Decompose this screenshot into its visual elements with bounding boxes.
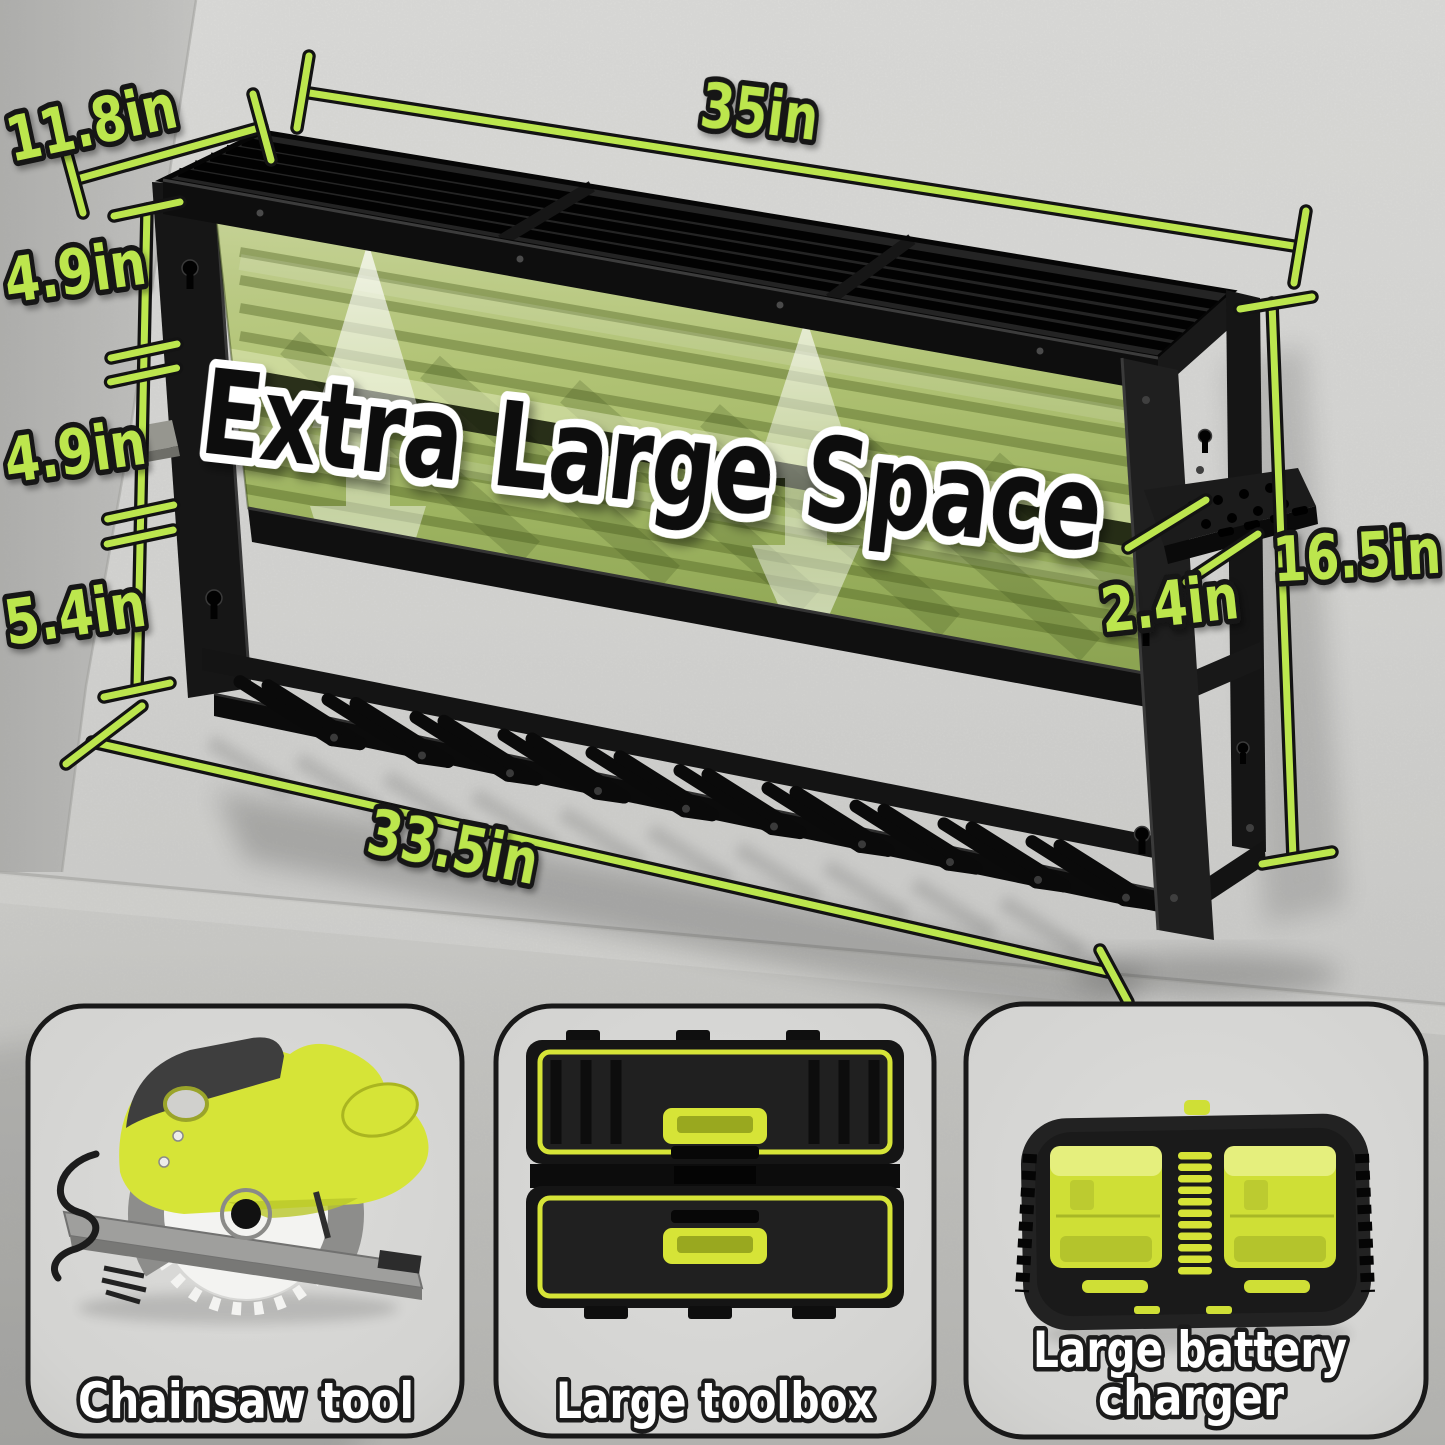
panel-label-charger-line2: charger [1098, 1369, 1284, 1427]
battery-pack [1050, 1146, 1162, 1268]
scene-svg: 11.8in 35in 4.9in 4.9in 5.4in 16.5in 2.4… [0, 0, 1445, 1445]
dim-total-height: 16.5in [1271, 515, 1443, 597]
panel-chainsaw-tool: cut classic Chainsaw tool [28, 1006, 462, 1436]
dim-top-width: 35in [697, 68, 823, 155]
product-infographic: 11.8in 35in 4.9in 4.9in 5.4in 16.5in 2.4… [0, 0, 1445, 1445]
panel-large-battery-charger: Large battery charger [966, 1004, 1426, 1437]
battery-pack [1224, 1146, 1336, 1268]
dim-side-tray: 2.4in [1097, 560, 1242, 647]
panel-label-chainsaw: Chainsaw tool [78, 1372, 414, 1430]
feature-panels: cut classic Chainsaw tool [28, 1004, 1426, 1437]
panel-label-toolbox: Large toolbox [556, 1372, 874, 1430]
toolbox-icon [526, 1030, 904, 1319]
panel-large-toolbox: Large toolbox [496, 1006, 934, 1436]
charger-vent-slots [1178, 1152, 1212, 1275]
battery-charger-icon [1020, 1100, 1372, 1350]
